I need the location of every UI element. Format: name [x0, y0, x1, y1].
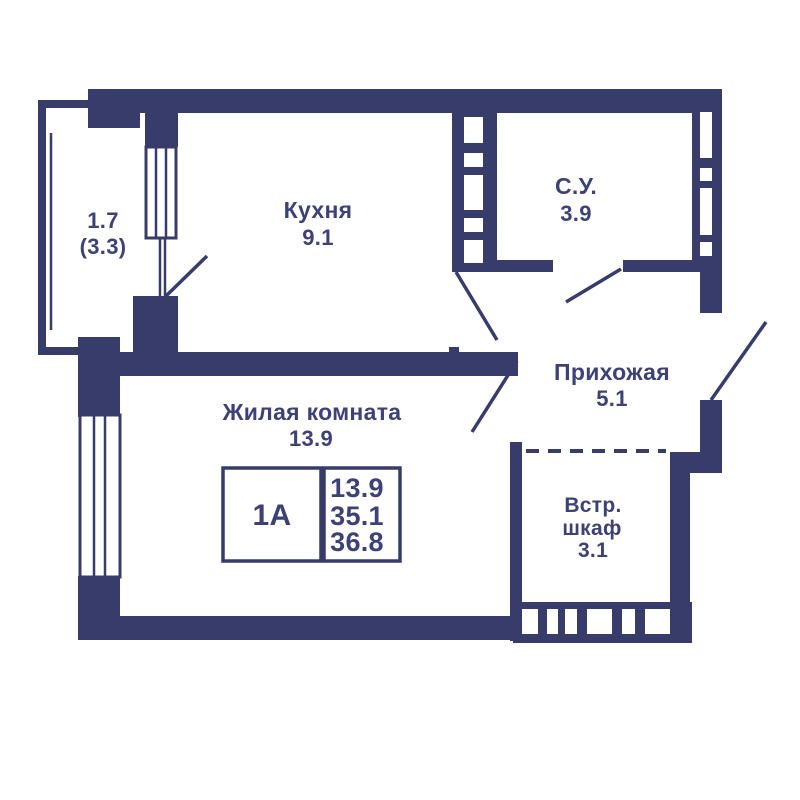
wall-balcony-column-bottom [133, 296, 178, 356]
hallway-area-label: 5.1 [596, 386, 627, 411]
wall-bathroom-right-face [692, 89, 700, 272]
closet-band-slot-3 [565, 609, 577, 634]
closet-name-line2-label: шкаф [562, 517, 621, 540]
kitchen-door-swing [456, 272, 497, 340]
kitchen-name-label: Кухня [284, 197, 353, 223]
wall-living-top [120, 352, 518, 376]
unit-living-area-label: 13.9 [330, 473, 384, 503]
left-shaft-slot-2 [464, 153, 483, 167]
wall-right-mid [700, 400, 722, 473]
closet-band-slot-5 [622, 609, 635, 634]
left-shaft-slot-1 [464, 117, 483, 143]
wall-bottom [78, 616, 513, 640]
wall-closet-right [670, 452, 690, 641]
balcony-parapet-left [38, 100, 46, 355]
balcony-door-swing [166, 256, 207, 296]
balcony-area-label: 1.7 [87, 208, 118, 233]
wall-top [88, 89, 722, 113]
wall-living-left-upper [78, 337, 120, 417]
right-shaft-slot-3 [700, 188, 712, 235]
closet-band-slot-2 [547, 609, 558, 634]
closet-band-slot-6 [645, 609, 670, 634]
wall-bathroom-bottom-right [623, 260, 693, 272]
closet-name-line1-label: Встр. [564, 494, 621, 517]
living-room-area-label: 13.9 [289, 426, 333, 451]
balcony-area-total-label: (3.3) [80, 234, 127, 259]
wall-balcony-column-top [145, 89, 178, 147]
unit-number-label: 1А [253, 499, 292, 532]
wall-door-tick [449, 347, 459, 353]
left-shaft-slot-4 [464, 218, 483, 232]
wall-closet-left [510, 442, 522, 641]
bathroom-door-swing [566, 269, 621, 302]
balcony-parapet-top [38, 100, 90, 108]
hallway-name-label: Прихожая [554, 359, 670, 385]
right-shaft-slot-4 [700, 242, 712, 256]
right-shaft-slot-2 [700, 168, 712, 181]
floor-plan: 1.7 (3.3) Кухня 9.1 С.У. 3.9 Прихожая 5.… [0, 0, 800, 800]
closet-area-label: 3.1 [578, 539, 608, 562]
right-shaft-slot-1 [700, 112, 712, 158]
closet-band-slot-1 [522, 609, 538, 634]
living-room-name-label: Жилая комната [222, 399, 402, 425]
kitchen-window [146, 147, 176, 238]
bathroom-area-label: 3.9 [560, 201, 591, 226]
left-shaft-slot-5 [464, 240, 483, 263]
entrance-door-swing [711, 322, 766, 400]
bathroom-name-label: С.У. [555, 173, 597, 199]
living-room-window [80, 415, 120, 577]
kitchen-area-label: 9.1 [302, 225, 333, 250]
wall-top-left-block [88, 89, 140, 128]
left-shaft-slot-3 [464, 175, 483, 210]
closet-band-slot-4 [587, 609, 612, 634]
unit-total-area-label: 36.8 [330, 527, 384, 557]
floor-plan-svg: 1.7 (3.3) Кухня 9.1 С.У. 3.9 Прихожая 5.… [0, 0, 800, 800]
